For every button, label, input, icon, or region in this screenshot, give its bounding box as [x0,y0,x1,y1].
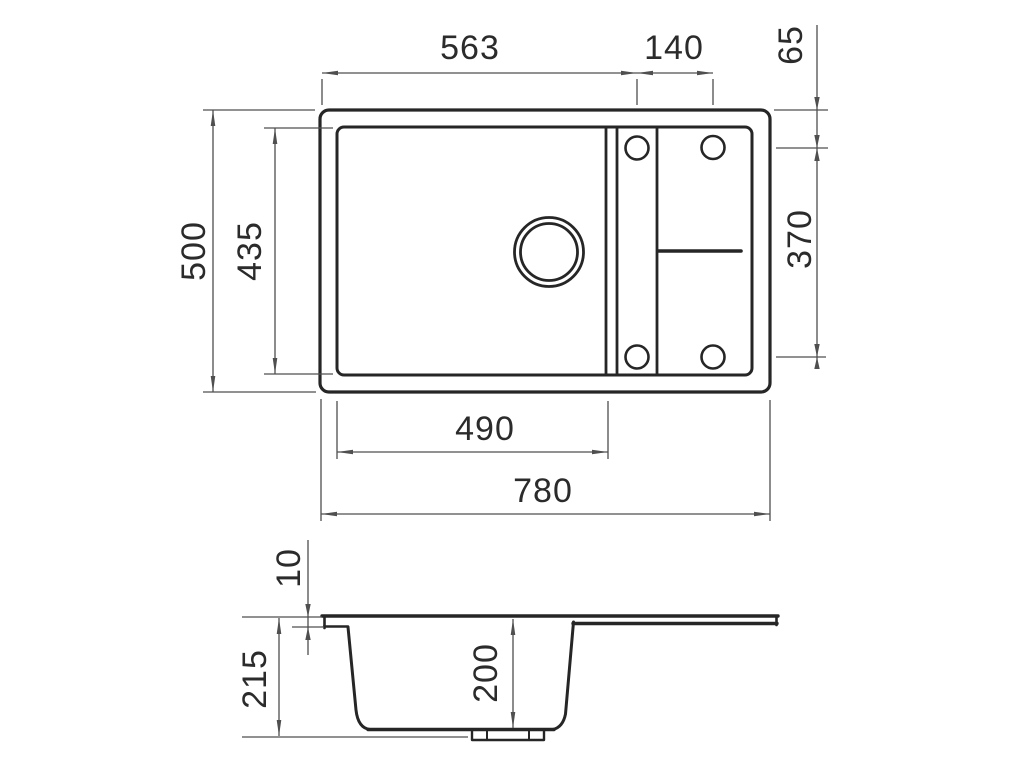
bowl-right-wall [553,622,574,730]
dim-label-370: 370 [781,209,819,269]
dim-label-435: 435 [231,221,269,281]
dim-label-65: 65 [772,25,810,65]
dim-label-140: 140 [644,29,704,67]
dimension-435: 435 [231,128,333,374]
section-view: 10 215 200 [236,540,778,740]
faucet-hole-top-right [702,136,725,159]
sink-technical-drawing: 563 140 500 435 [0,0,1024,768]
dim-label-563: 563 [440,29,500,67]
dim-label-780: 780 [513,472,573,510]
dimension-490: 490 [337,401,608,459]
dim-label-200: 200 [467,643,505,703]
dim-label-500: 500 [175,221,213,281]
drain-inner-ring [521,224,578,281]
top-view: 563 140 500 435 [175,25,828,521]
dimension-140: 140 [637,29,713,105]
dimension-780: 780 [321,399,770,521]
dim-label-10: 10 [270,548,308,588]
dim-label-490: 490 [455,410,515,448]
dimension-563: 563 [322,29,637,105]
dimension-10: 10 [242,540,324,655]
faucet-hole-top-left [626,137,649,160]
bowl-left-wall [348,627,370,730]
faucet-hole-bottom-left [626,346,649,369]
drain-outer-ring [515,218,584,287]
faucet-hole-bottom-right [702,346,725,369]
dimension-200: 200 [467,619,513,728]
dimension-65-370: 65 370 [772,25,828,369]
dim-label-215: 215 [236,649,274,709]
drawing-page: 563 140 500 435 [0,0,1024,768]
